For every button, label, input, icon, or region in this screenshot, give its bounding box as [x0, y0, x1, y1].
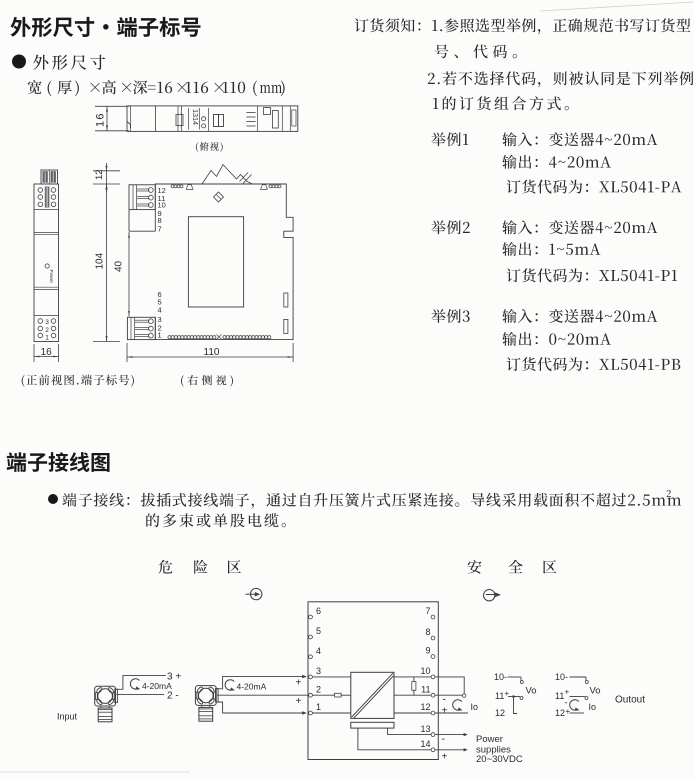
svg-text:1: 1: [45, 334, 49, 341]
svg-text:Outout: Outout: [615, 695, 645, 706]
svg-text:6: 6: [316, 606, 321, 616]
svg-text:11: 11: [495, 691, 504, 701]
svg-text:-: -: [443, 694, 447, 706]
svg-text:7: 7: [158, 224, 162, 233]
svg-text:1314: 1314: [191, 109, 200, 125]
svg-text:4-20mA: 4-20mA: [237, 682, 267, 692]
svg-text:12: 12: [555, 708, 565, 718]
svg-text:10-: 10-: [555, 672, 568, 682]
svg-text:-: -: [565, 698, 568, 708]
svg-text:+: +: [442, 751, 448, 762]
svg-text:8: 8: [425, 627, 430, 637]
svg-text:2: 2: [316, 684, 321, 694]
svg-text:110: 110: [204, 347, 220, 358]
svg-text:9: 9: [425, 646, 430, 656]
svg-text:10-: 10-: [494, 672, 507, 682]
svg-text:11: 11: [421, 684, 430, 694]
svg-text:+: +: [296, 678, 302, 689]
svg-text:Input: Input: [57, 712, 78, 722]
svg-text:+: +: [442, 706, 448, 717]
svg-text:104: 104: [95, 252, 106, 269]
svg-text:2: 2: [45, 327, 49, 334]
svg-text:16: 16: [94, 112, 106, 127]
svg-text:+: +: [565, 688, 570, 697]
svg-text:7: 7: [425, 606, 430, 616]
svg-text:13: 13: [420, 724, 430, 734]
svg-text:4: 4: [158, 306, 162, 315]
svg-text:5: 5: [316, 626, 321, 636]
svg-text:Io: Io: [471, 702, 479, 712]
svg-text:3: 3: [45, 319, 49, 326]
svg-text:14: 14: [420, 739, 430, 749]
svg-text:12: 12: [495, 708, 505, 718]
svg-text:Io: Io: [589, 702, 597, 712]
svg-text:1: 1: [158, 330, 162, 339]
svg-text:2 -: 2 -: [167, 691, 179, 702]
svg-text:-: -: [442, 733, 446, 745]
svg-text:40: 40: [114, 260, 125, 272]
svg-text:20~30VDC: 20~30VDC: [476, 754, 523, 765]
svg-text:+: +: [566, 707, 571, 716]
svg-text:4-20mA: 4-20mA: [142, 681, 172, 691]
svg-text:+: +: [296, 696, 302, 707]
svg-text:11: 11: [555, 691, 564, 701]
svg-text:10: 10: [420, 666, 430, 676]
svg-text:4: 4: [316, 646, 321, 656]
svg-text:16: 16: [41, 347, 53, 358]
svg-text:12: 12: [94, 169, 105, 180]
svg-text:1: 1: [316, 702, 321, 712]
svg-text:Vo: Vo: [526, 686, 537, 697]
svg-text:Power: Power: [48, 270, 54, 284]
svg-text:Vo: Vo: [590, 686, 601, 697]
svg-text:12: 12: [420, 702, 430, 712]
svg-text:3: 3: [316, 666, 321, 676]
